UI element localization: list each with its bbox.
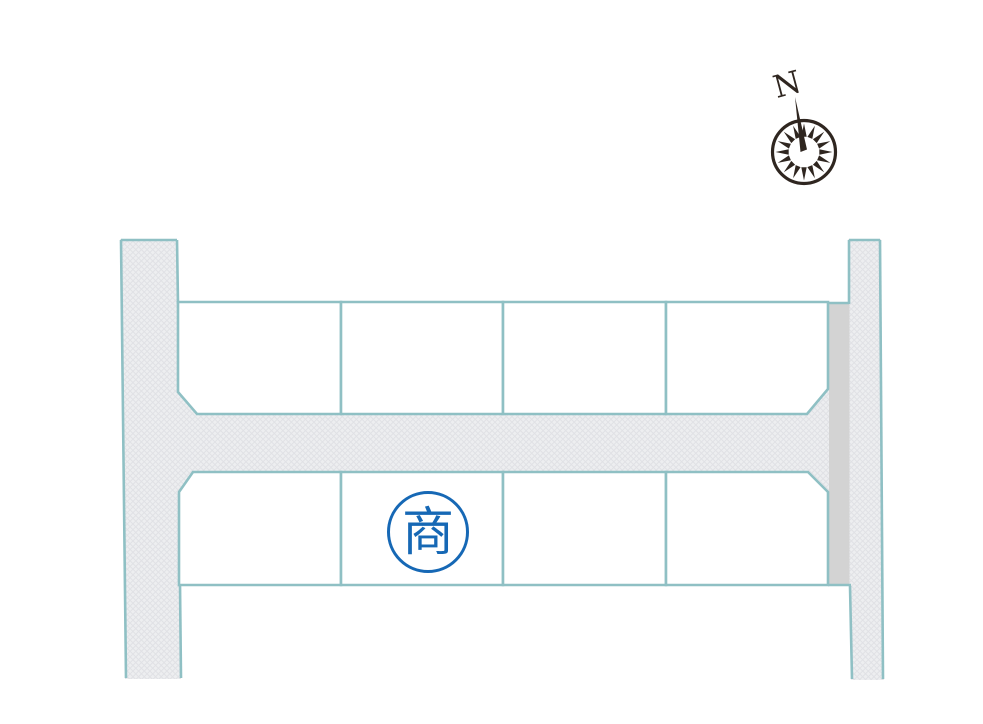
featured-plot-tagline: 街なかモデルハウス	[193, 481, 328, 499]
compass-spike	[784, 132, 795, 143]
site-plan-drawing: 街なかモデルハウス 岐阜市須賀 E区画 商 N	[0, 0, 983, 724]
compass-spike	[819, 149, 832, 154]
featured-plot-section-suffix: 区画	[256, 556, 298, 579]
compass-spike	[807, 126, 815, 139]
compass-spikes	[776, 124, 833, 181]
compass-spike	[813, 132, 824, 143]
compass-rose-icon: N	[769, 64, 835, 183]
sidewalk-strip	[829, 303, 850, 584]
compass-spike	[793, 165, 801, 178]
plot-top-1	[178, 302, 341, 414]
plot-bottom-4	[666, 472, 828, 585]
plot-top-2	[341, 302, 503, 414]
plot-top-3	[503, 302, 666, 414]
compass-spike	[817, 155, 830, 163]
north-label: N	[769, 64, 805, 106]
site-plan: 街なかモデルハウス 岐阜市須賀 E区画 商 N	[0, 0, 983, 724]
compass-spike	[778, 155, 791, 163]
compass-spike	[778, 141, 791, 149]
road-right	[848, 239, 884, 680]
road-left	[120, 239, 181, 679]
north-needle-icon	[795, 97, 807, 152]
compass-spike	[817, 141, 830, 149]
compass-spike	[807, 165, 815, 178]
plot-bottom-3	[503, 472, 666, 585]
compass-spike	[776, 149, 789, 154]
commercial-mark: 商	[402, 504, 454, 562]
featured-plot-name: 岐阜市須賀	[190, 506, 333, 539]
featured-plot-section-letter: E	[228, 537, 255, 583]
plot-top-4	[666, 302, 828, 414]
compass-spike	[813, 161, 824, 172]
compass-spike	[801, 167, 806, 180]
compass-spike	[784, 161, 795, 172]
